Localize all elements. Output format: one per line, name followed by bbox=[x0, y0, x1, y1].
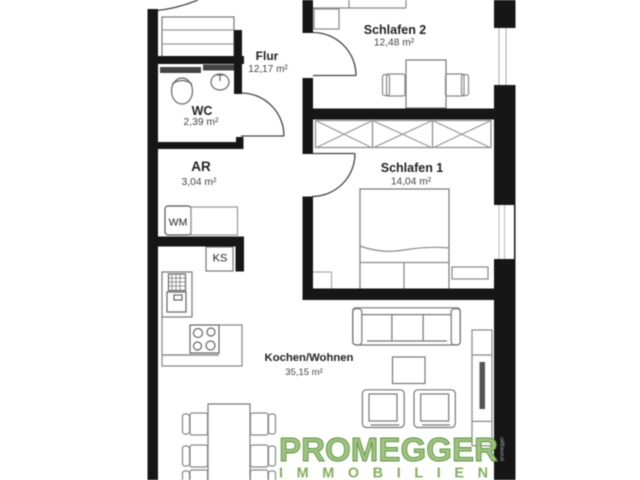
svg-text:12,17 m²: 12,17 m² bbox=[248, 64, 288, 75]
svg-text:12,48 m²: 12,48 m² bbox=[374, 38, 415, 49]
svg-text:WC: WC bbox=[192, 104, 213, 118]
svg-text:WM: WM bbox=[169, 217, 188, 229]
svg-text:KS: KS bbox=[213, 253, 228, 265]
svg-text:AR: AR bbox=[191, 159, 211, 174]
svg-text:Schlafen 1: Schlafen 1 bbox=[381, 161, 444, 175]
svg-text:PROMEGGER: PROMEGGER bbox=[279, 431, 498, 468]
svg-text:2,39 m²: 2,39 m² bbox=[184, 117, 219, 128]
svg-text:14,04 m²: 14,04 m² bbox=[391, 177, 432, 188]
svg-text:35,15 m²: 35,15 m² bbox=[285, 367, 323, 378]
svg-text:3,04 m²: 3,04 m² bbox=[182, 177, 217, 188]
svg-text:Kochen/Wohnen: Kochen/Wohnen bbox=[265, 352, 354, 364]
svg-text:Flur: Flur bbox=[256, 49, 279, 63]
svg-text:promegger: promegger bbox=[500, 436, 506, 461]
svg-text:Schlafen 2: Schlafen 2 bbox=[364, 23, 427, 37]
